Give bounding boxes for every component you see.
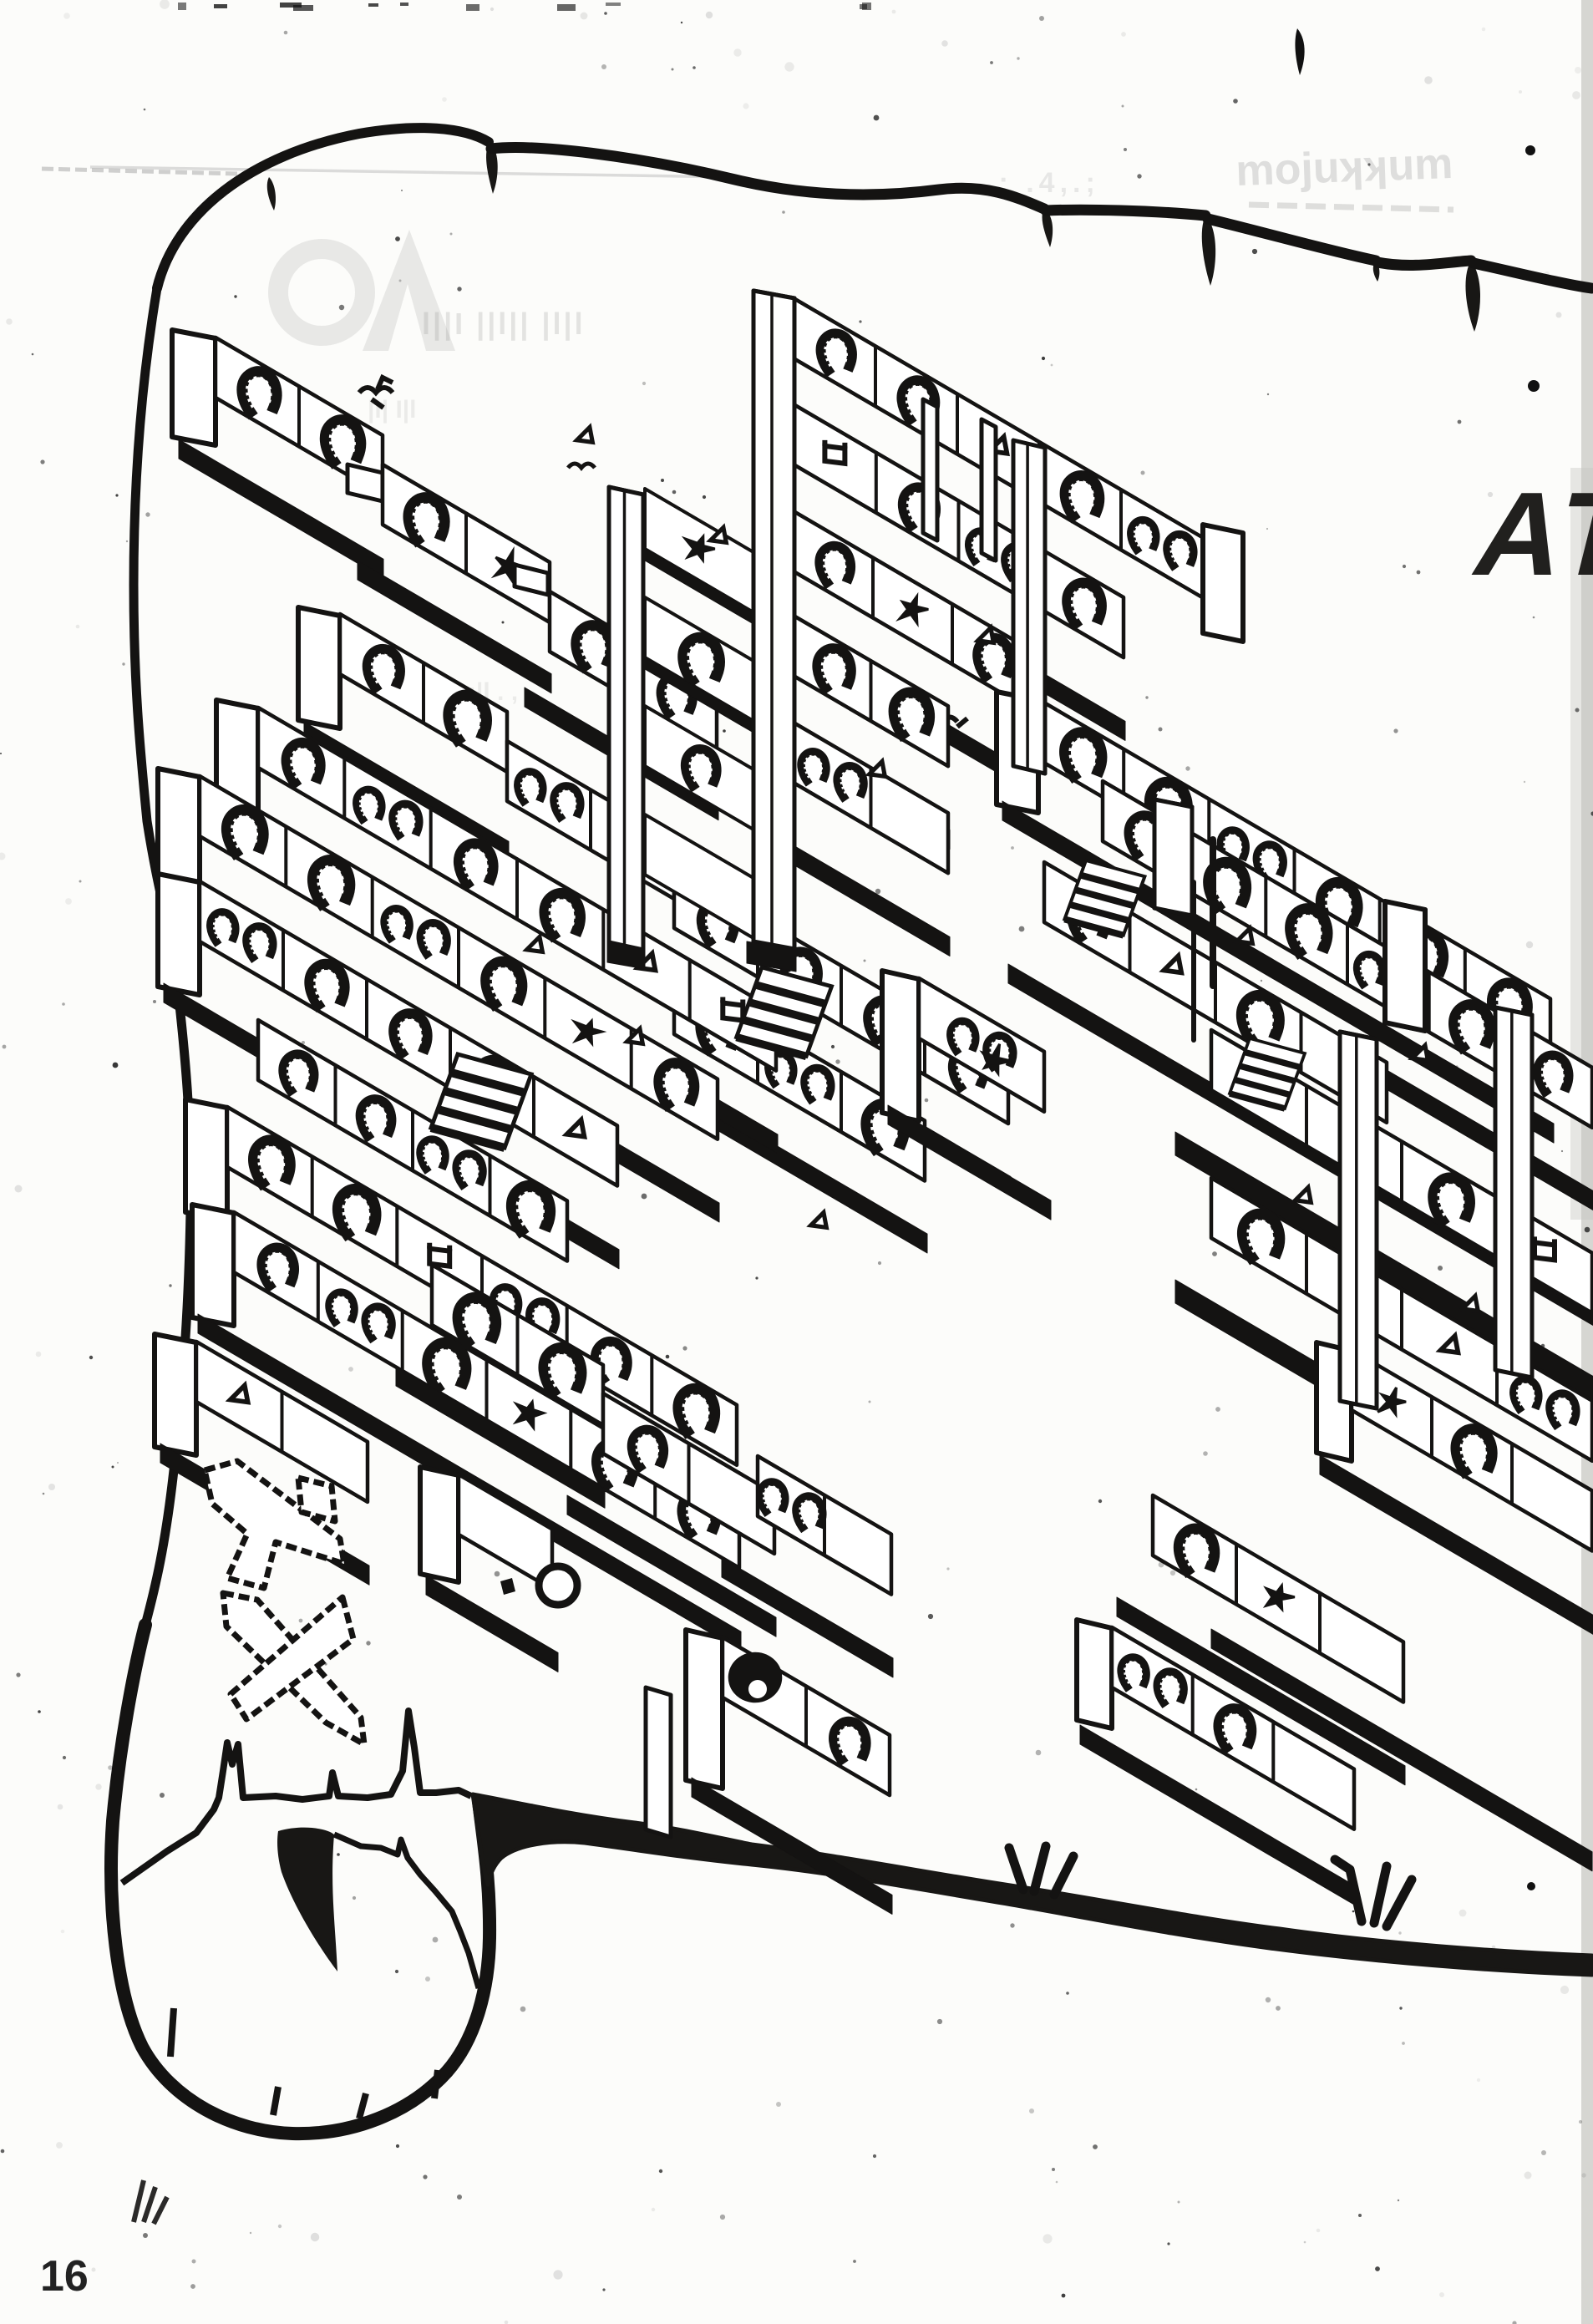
svg-text:l||I ||l|| |l|l: l||I ||l|| |l|l xyxy=(422,307,586,342)
svg-text:mojuʞʞum: mojuʞʞum xyxy=(1235,140,1453,195)
svg-text:16: 16 xyxy=(40,2252,89,2301)
